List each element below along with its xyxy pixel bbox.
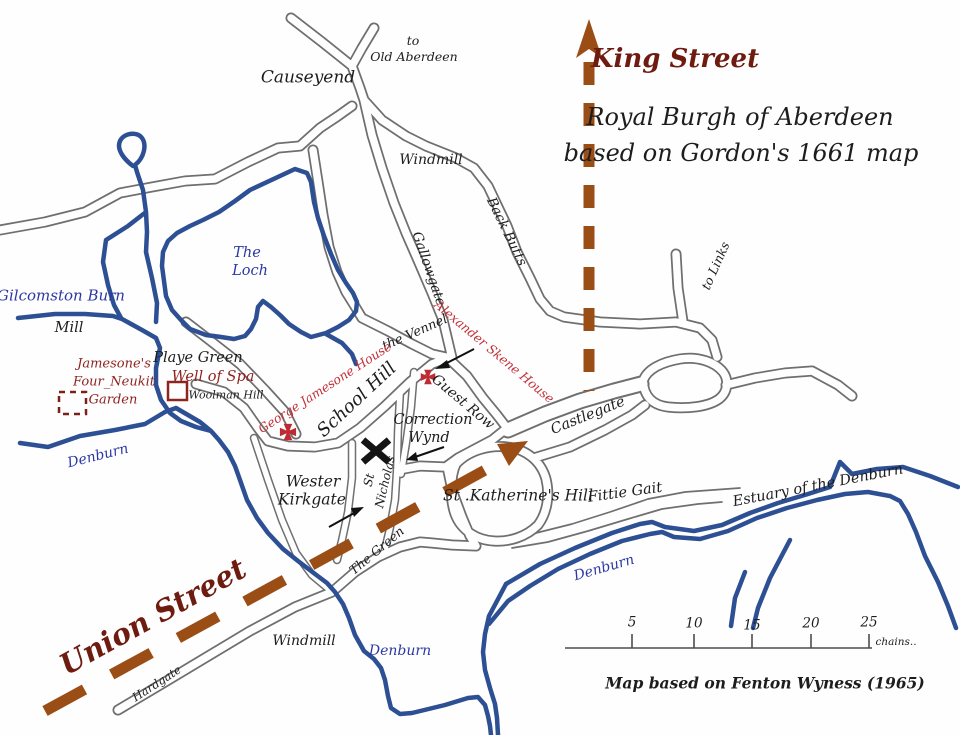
label-woolman-hill: Woolman Hill [188, 390, 263, 401]
label-jamesones-1: Jamesone's [77, 358, 151, 371]
label-jamesones-3: Garden [89, 394, 138, 407]
label-st-nicholas-1: St [362, 472, 377, 487]
label-wester: Wester [286, 474, 341, 490]
label-gilcomston-burn: Gilcomston Burn [0, 289, 125, 304]
map-title-line2: based on Gordon's 1661 map [564, 141, 919, 165]
label-kirkgate: Kirkgate [278, 492, 346, 508]
label-the-loch-2: Loch [232, 264, 268, 279]
label-old-aberdeen: Old Aberdeen [370, 51, 457, 64]
label-jamesones-2: Four_Neukit [73, 376, 155, 389]
label-king-street: King Street [591, 46, 759, 72]
scale-tick-25: 25 [860, 616, 877, 630]
label-mill: Mill [55, 321, 84, 336]
label-the-loch-1: The [233, 246, 261, 261]
aberdeen-1661-map: Royal Burgh of Aberdeen based on Gordon'… [0, 0, 960, 735]
label-well-of-spa: Well of Spa [172, 370, 255, 385]
water-features [18, 134, 958, 735]
label-correction: Correction [394, 413, 473, 428]
scale-tick-15: 15 [743, 619, 760, 633]
label-playe-green: Playe Green [153, 351, 242, 366]
label-st-katherines-hill: St .Katherine's Hill [443, 488, 593, 504]
scale-unit-label: chains.. [875, 637, 916, 648]
map-title-line1: Royal Burgh of Aberdeen [586, 105, 893, 129]
scale-bar [565, 634, 872, 648]
label-windmill-top: Windmill [399, 153, 462, 167]
label-denburn-bottom: Denburn [369, 644, 431, 658]
scale-tick-10: 10 [685, 617, 702, 631]
label-causeyend: Causeyend [261, 70, 355, 87]
scale-tick-5: 5 [628, 616, 637, 630]
correction-wynd-arrow [415, 447, 444, 457]
garden-marker [59, 392, 86, 414]
label-windmill-bottom: Windmill [272, 634, 335, 648]
map-credit: Map based on Fenton Wyness (1965) [605, 675, 924, 691]
scale-tick-20: 20 [802, 617, 819, 631]
label-wynd: Wynd [408, 431, 449, 446]
label-to: to [407, 35, 420, 48]
